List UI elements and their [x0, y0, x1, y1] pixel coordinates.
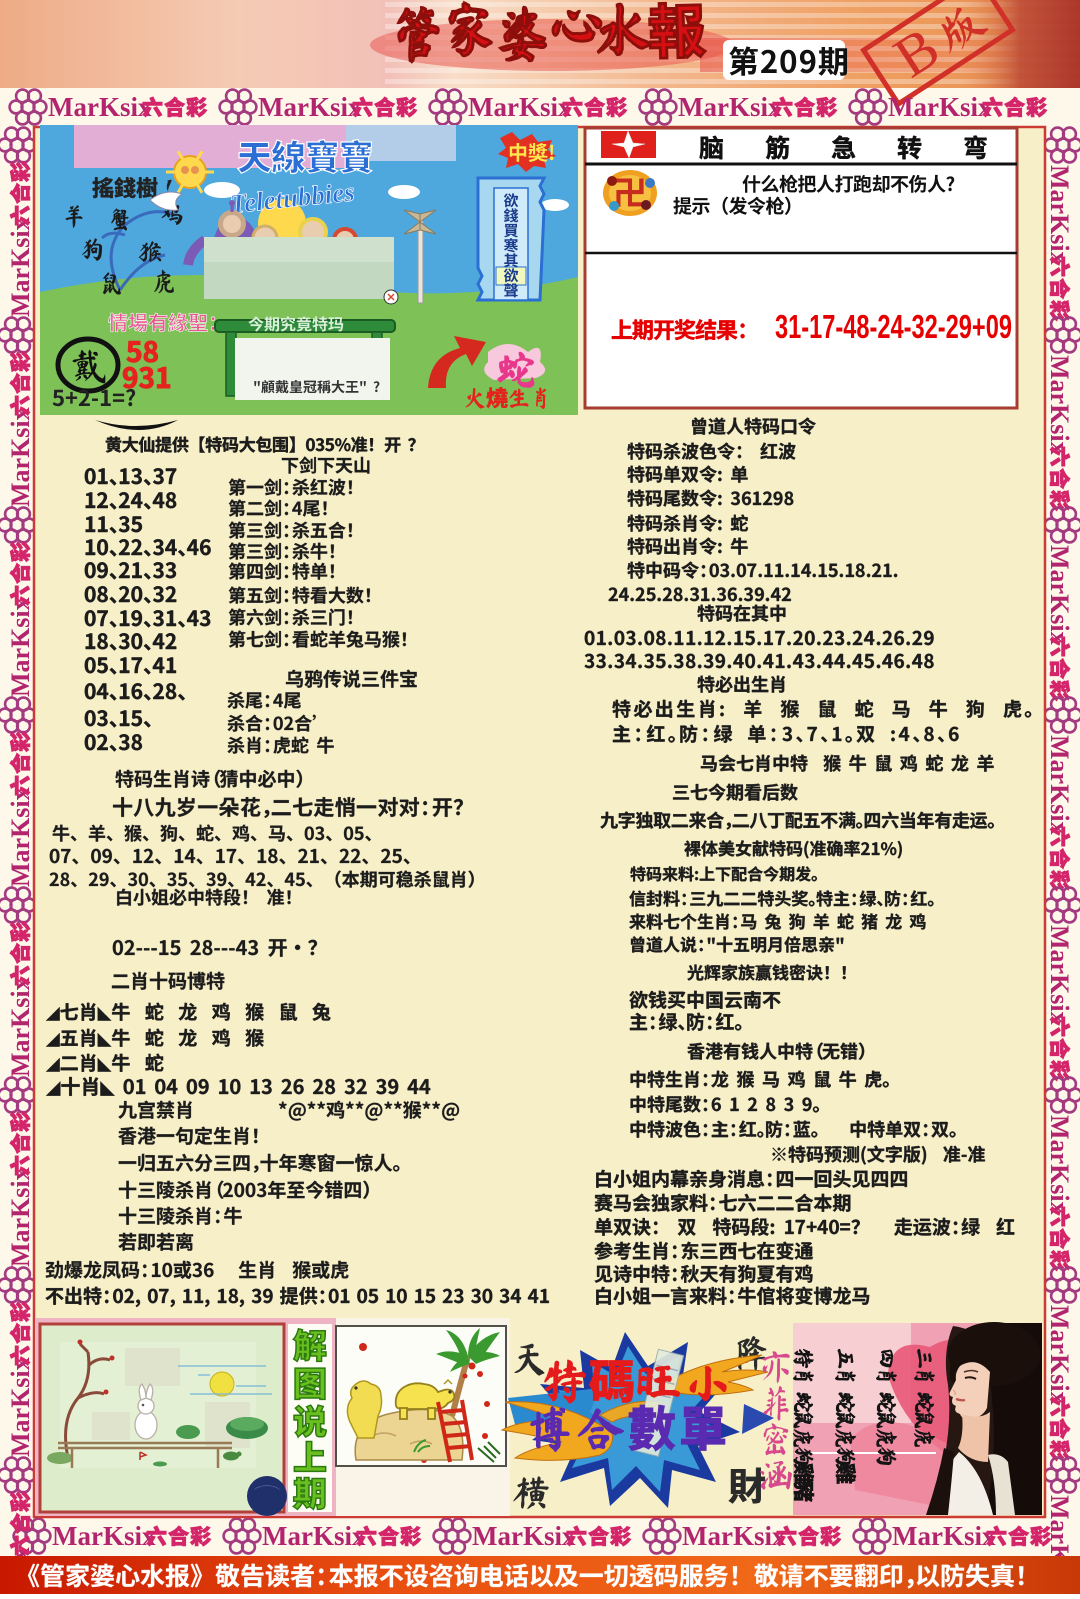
svg-text:MarKsix: MarKsix	[6, 1357, 35, 1457]
svg-text:MarKsix: MarKsix	[6, 977, 35, 1077]
svg-text:MarKsix: MarKsix	[6, 787, 35, 887]
svg-text:MarKsix: MarKsix	[48, 92, 152, 122]
svg-text:MarKsix: MarKsix	[682, 1521, 786, 1551]
svg-text:MarKsix: MarKsix	[6, 407, 35, 507]
svg-text:MarKsix: MarKsix	[6, 1167, 35, 1267]
svg-text:MarKsix: MarKsix	[6, 217, 35, 317]
svg-text:MarKsix: MarKsix	[258, 92, 362, 122]
svg-text:31-17-48-24-32-29+09: 31-17-48-24-32-29+09	[775, 308, 1012, 345]
svg-text:MarKsix: MarKsix	[888, 92, 992, 122]
svg-text:MarKsix: MarKsix	[52, 1521, 156, 1551]
svg-text:MarKsix: MarKsix	[472, 1521, 576, 1551]
svg-text:MarKsix: MarKsix	[1045, 925, 1074, 1025]
svg-text:MarKsix: MarKsix	[468, 92, 572, 122]
svg-text:MarKsix: MarKsix	[678, 92, 782, 122]
svg-text:MarKsix: MarKsix	[1045, 735, 1074, 835]
svg-text:MarKsix: MarKsix	[1045, 1115, 1074, 1215]
svg-text:MarKsix: MarKsix	[1045, 545, 1074, 645]
svg-text:MarKsix: MarKsix	[6, 597, 35, 697]
svg-text:MarKsix: MarKsix	[1045, 1305, 1074, 1405]
svg-text:MarKsix: MarKsix	[262, 1521, 366, 1551]
svg-text:MarKsix: MarKsix	[1045, 355, 1074, 455]
svg-text:MarKsix: MarKsix	[1045, 165, 1074, 265]
svg-text:MarKsix: MarKsix	[892, 1521, 996, 1551]
